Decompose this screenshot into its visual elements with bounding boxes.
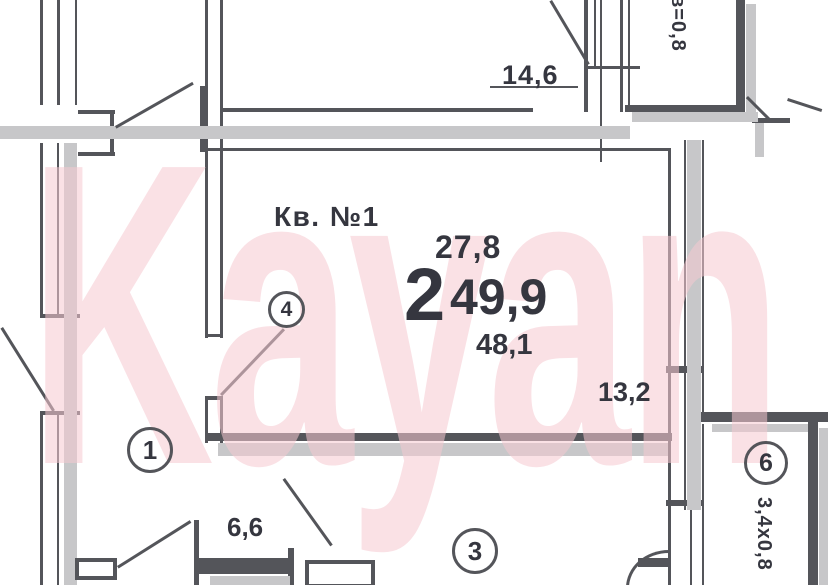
wall-segment [220,0,223,338]
wall-segment [40,143,43,318]
wall-shadow [210,576,290,585]
room-marker-balcony: 6 [744,441,788,485]
wall-shadow [755,123,764,157]
room-marker-room3-number: 3 [468,536,482,567]
wall-shadow [819,428,828,585]
wall-segment [57,0,60,105]
room-marker-closet-number: 4 [281,298,293,322]
wall-segment [594,0,596,66]
wall-cap [205,334,223,337]
dimension-line [588,66,640,69]
wall-segment [57,415,59,585]
wall-segment [702,140,704,422]
wall-segment [684,140,686,510]
dimension-label-top-room: 14,6 [502,62,559,89]
wall-segment [195,558,290,574]
door-jamb [194,520,199,585]
wall-segment [620,0,623,112]
door-leaf [0,327,54,412]
total-area-label: 49,9 [450,272,547,322]
room-marker-hall-number: 1 [143,435,157,466]
wall-segment [78,152,115,156]
wall-shadow [64,143,77,585]
wall-segment [702,424,704,585]
wall-segment [625,105,745,112]
dimension-label-main-room: 13,2 [598,379,651,406]
room-marker-closet: 4 [268,291,305,328]
balcony-right-label: 3,4х0,8 [754,497,774,571]
door-leaf [115,82,194,129]
wall-shadow [632,112,758,122]
corner-mark [787,98,822,112]
wall-shadow [687,140,701,510]
wall-shadow [0,126,630,139]
area-alt-label: 48,1 [476,331,532,360]
wall-segment [628,0,630,112]
door-leaf [117,520,191,568]
room-count-label: 2 [404,258,445,332]
wall-shadow [712,424,808,432]
wall-segment [205,433,672,441]
floor-plan: Kayan [0,0,828,585]
wall-segment [808,420,818,585]
wall-segment [40,415,43,585]
wall-segment [222,108,533,112]
wall-segment [40,0,43,105]
wall-segment [205,0,208,338]
wall-shadow [218,443,668,456]
fixture [305,560,375,585]
door-swing-arc [626,550,669,585]
dimension-label-kitchen: 6,6 [227,514,263,540]
room-marker-balcony-number: 6 [759,449,773,478]
apartment-label: Кв. №1 [274,203,380,231]
wall-stub [75,558,117,580]
wall-segment [57,143,59,318]
wall-segment [75,0,77,105]
door-leaf [283,478,333,546]
balcony-top-label: в=0,8 [668,0,688,52]
room-marker-hall: 1 [127,427,173,473]
wall-segment [736,0,745,112]
room-marker-room3: 3 [452,528,498,574]
door-leaf [220,328,285,396]
